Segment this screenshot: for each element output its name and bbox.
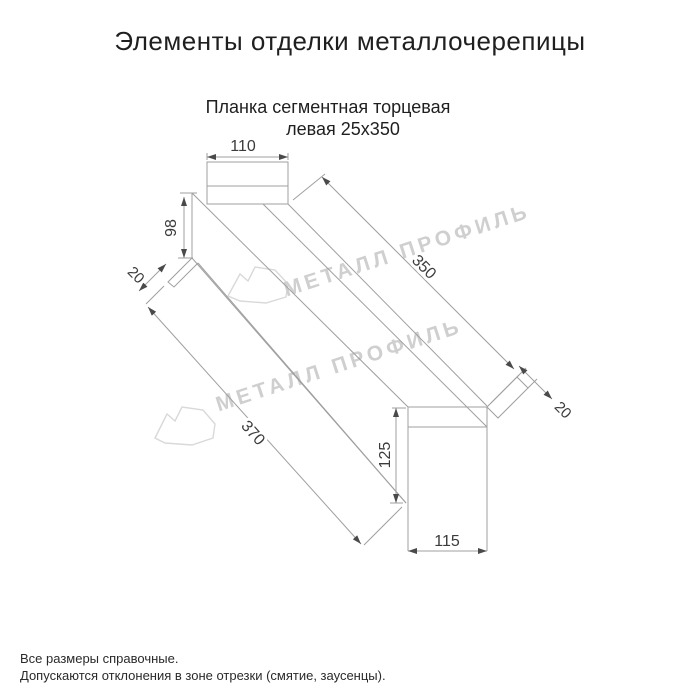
dim-top-width: 110 (230, 138, 256, 155)
watermark-text-upper: МЕТАЛЛ ПРОФИЛЬ (281, 200, 533, 302)
dim-bottom-width: 115 (434, 533, 460, 550)
top-end-face (207, 162, 288, 204)
dimension-labels: 110 98 20 350 370 125 115 20 (124, 138, 575, 550)
technical-drawing: МЕТАЛЛ ПРОФИЛЬ МЕТАЛЛ ПРОФИЛЬ (0, 0, 700, 700)
dim-right-flap: 20 (551, 398, 575, 422)
drawing-page: Элементы отделки металлочерепицы Планка … (0, 0, 700, 700)
dim-bottom-edge-length: 370 (237, 418, 268, 449)
dim-left-height: 98 (163, 219, 180, 237)
bottom-end-face (408, 407, 487, 551)
dim-right-height: 125 (377, 442, 394, 469)
dim-left-flap: 20 (124, 263, 148, 287)
brand-watermark: МЕТАЛЛ ПРОФИЛЬ МЕТАЛЛ ПРОФИЛЬ (155, 200, 533, 445)
right-flap (487, 377, 528, 418)
left-flap (168, 258, 198, 287)
hem-line (198, 263, 406, 503)
watermark-text-lower: МЕТАЛЛ ПРОФИЛЬ (213, 315, 465, 417)
brand-logo-icon (155, 407, 215, 445)
brand-logo-icon (228, 267, 288, 303)
